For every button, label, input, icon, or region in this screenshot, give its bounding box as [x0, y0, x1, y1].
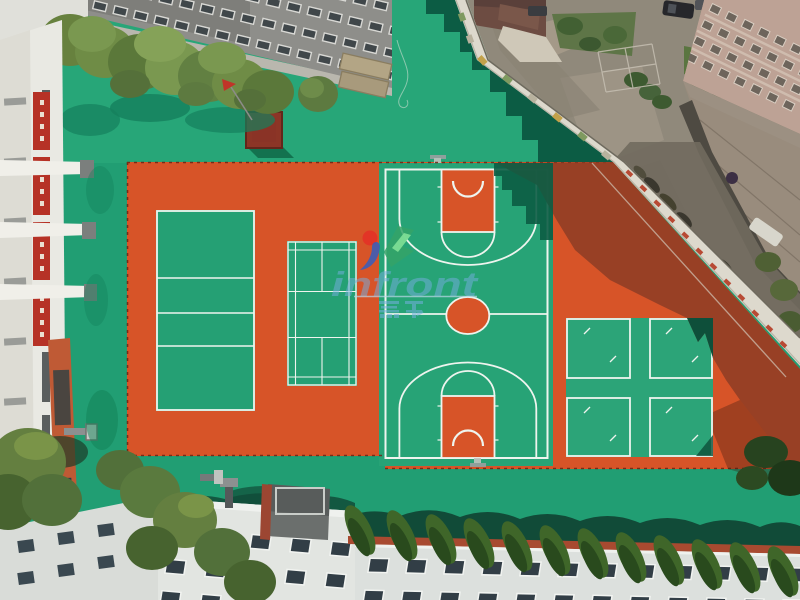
svg-text:infront: infront [331, 266, 479, 304]
